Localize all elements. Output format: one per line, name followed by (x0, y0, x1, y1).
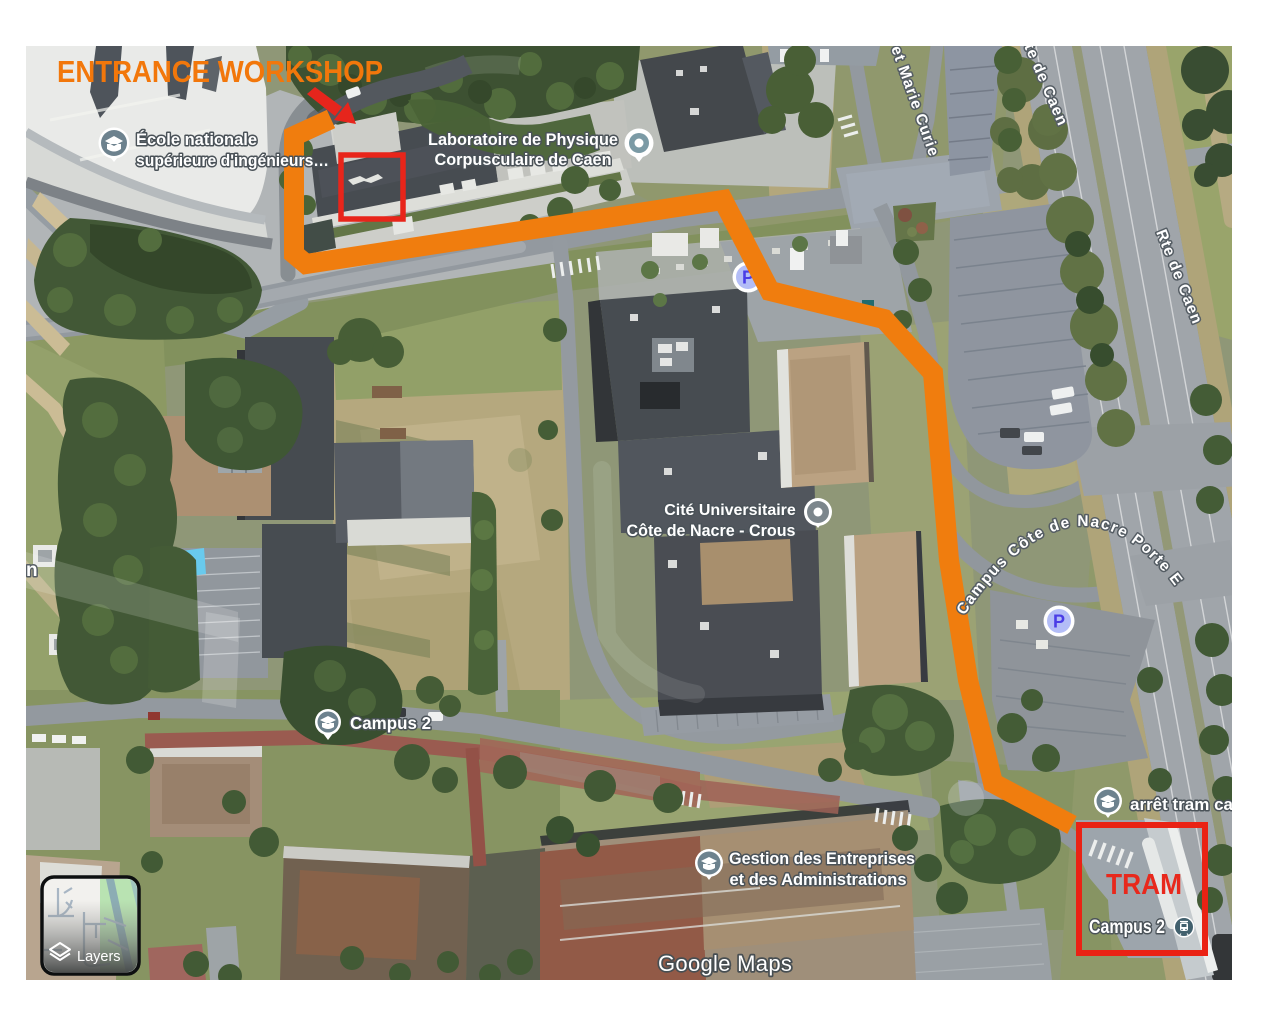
svg-text:Campus 2: Campus 2 (1089, 917, 1165, 938)
svg-text:supérieure d'ingénieurs…: supérieure d'ingénieurs… (136, 151, 329, 170)
svg-text:Google Maps: Google Maps (658, 951, 792, 976)
svg-text:École nationale: École nationale (136, 130, 257, 149)
svg-text:Layers: Layers (77, 949, 121, 965)
svg-text:P: P (1053, 612, 1065, 632)
svg-text:et des Administrations: et des Administrations (730, 870, 907, 889)
svg-text:Laboratoire de Physique: Laboratoire de Physique (428, 130, 618, 149)
svg-text:Corpusculaire de Caen: Corpusculaire de Caen (435, 150, 612, 169)
svg-text:Gestion des Entreprises: Gestion des Entreprises (729, 849, 915, 868)
svg-text:Cité Universitaire: Cité Universitaire (664, 502, 796, 519)
svg-text:arrêt tram ca: arrêt tram ca (1130, 795, 1234, 814)
svg-text:Campus 2: Campus 2 (350, 713, 431, 733)
svg-text:ENTRANCE WORKSHOP: ENTRANCE WORKSHOP (57, 54, 383, 89)
svg-text:Côte de Nacre - Crous: Côte de Nacre - Crous (627, 521, 796, 540)
svg-text:TRAM: TRAM (1106, 869, 1182, 901)
svg-text:n: n (26, 560, 38, 581)
